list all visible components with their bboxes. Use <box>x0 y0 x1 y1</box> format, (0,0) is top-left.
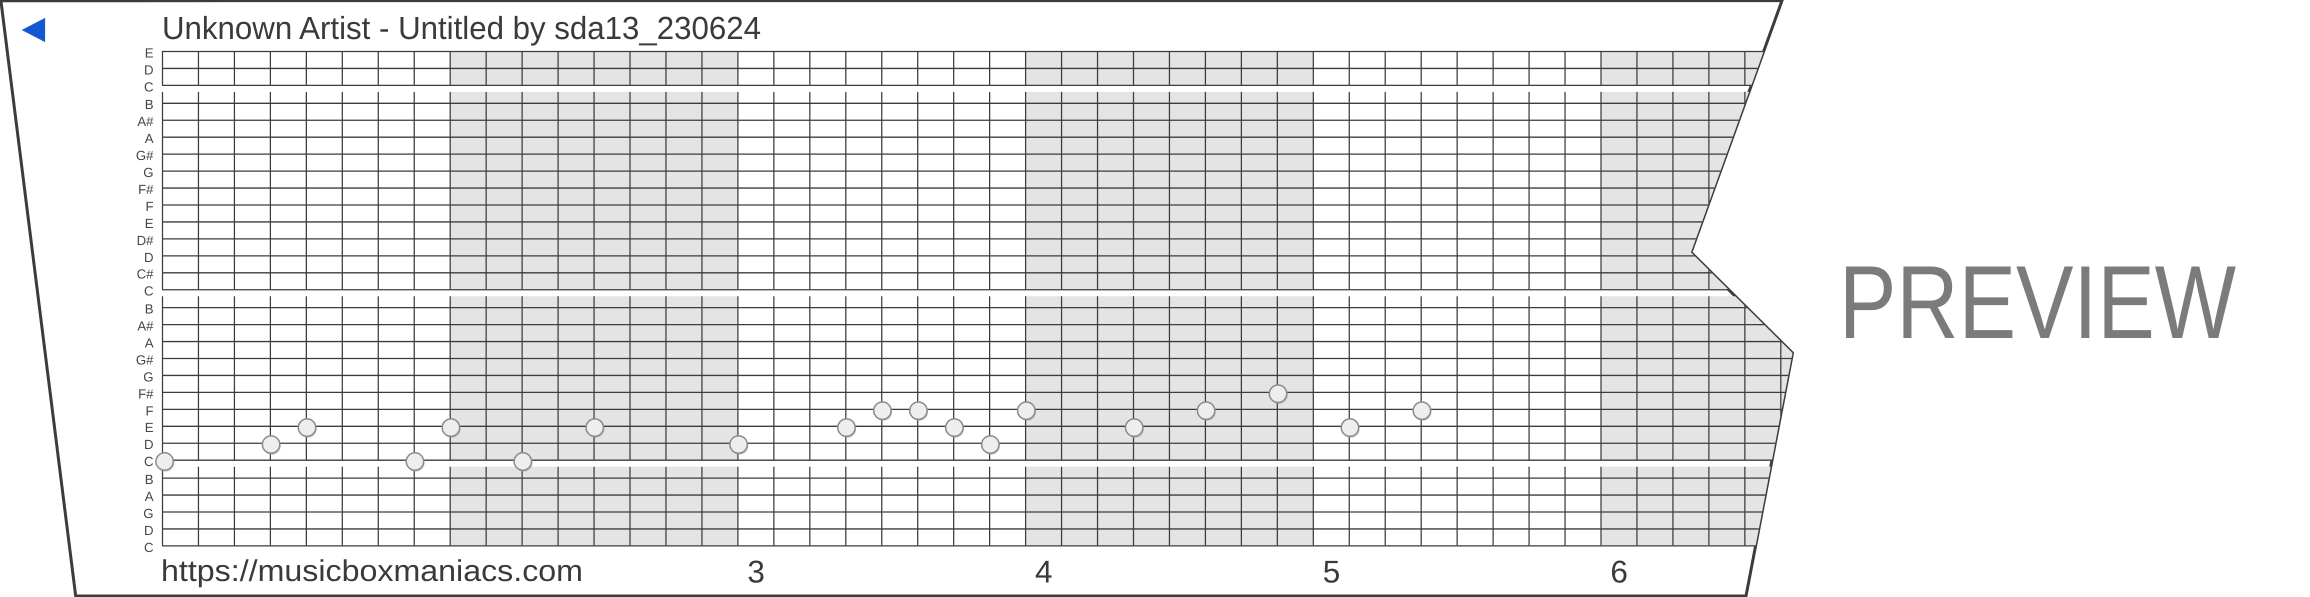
svg-text:D: D <box>144 523 154 538</box>
svg-text:4: 4 <box>1035 554 1053 590</box>
svg-text:G#: G# <box>136 148 154 163</box>
svg-text:A: A <box>145 335 154 350</box>
svg-text:F#: F# <box>138 386 154 401</box>
svg-text:A#: A# <box>137 114 154 129</box>
svg-text:F#: F# <box>138 182 154 197</box>
svg-text:5: 5 <box>1323 554 1341 590</box>
svg-text:D: D <box>144 437 154 452</box>
svg-text:G#: G# <box>136 352 154 367</box>
svg-text:D: D <box>144 250 154 265</box>
svg-text:B: B <box>145 472 154 487</box>
svg-text:A#: A# <box>137 319 154 334</box>
svg-text:C: C <box>144 454 154 469</box>
svg-text:E: E <box>145 420 154 435</box>
svg-text:G: G <box>143 369 153 384</box>
svg-text:E: E <box>145 45 154 60</box>
svg-text:D#: D# <box>137 233 155 248</box>
svg-text:B: B <box>145 97 154 112</box>
svg-text:A: A <box>145 489 154 504</box>
svg-text:PREVIEW: PREVIEW <box>1839 245 2236 361</box>
svg-text:G: G <box>143 165 153 180</box>
svg-text:D: D <box>144 62 154 77</box>
svg-text:E: E <box>145 216 154 231</box>
svg-text:C#: C# <box>137 267 155 282</box>
svg-text:G: G <box>143 506 153 521</box>
svg-text:C: C <box>144 540 154 555</box>
svg-text:C: C <box>144 79 154 94</box>
svg-text:C: C <box>144 284 154 299</box>
svg-text:B: B <box>145 302 154 317</box>
svg-text:A: A <box>145 131 154 146</box>
svg-text:Unknown Artist - Untitled by s: Unknown Artist - Untitled by sda13_23062… <box>162 10 761 46</box>
svg-text:F: F <box>145 403 153 418</box>
svg-text:6: 6 <box>1610 554 1628 590</box>
svg-text:https://musicboxmaniacs.com: https://musicboxmaniacs.com <box>161 555 583 588</box>
svg-text:F: F <box>145 199 153 214</box>
svg-text:3: 3 <box>747 554 765 590</box>
